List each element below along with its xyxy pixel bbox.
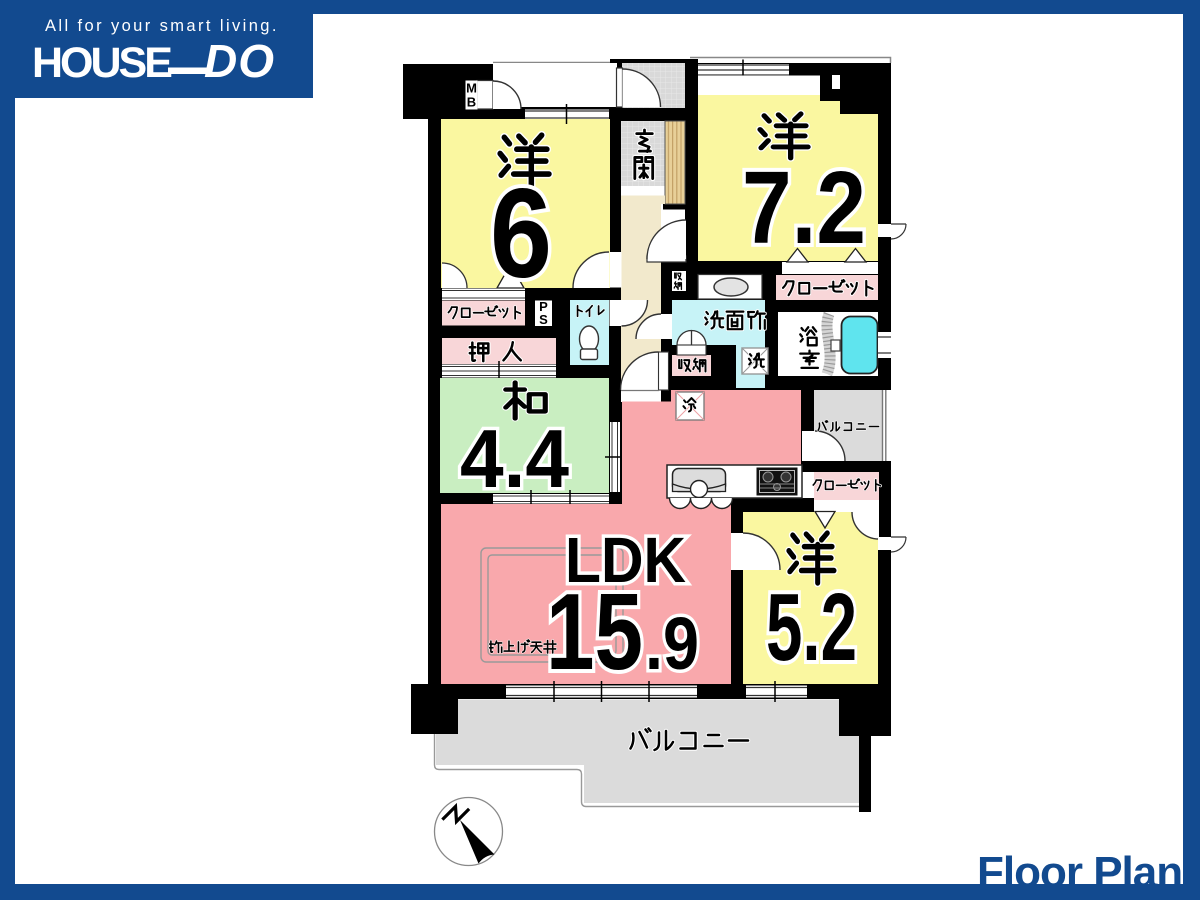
svg-text:15: 15 (546, 571, 643, 693)
svg-text:HOUSE: HOUSE (32, 39, 171, 87)
svg-text:6: 6 (490, 162, 552, 304)
svg-text:Floor Plan: Floor Plan (977, 848, 1182, 897)
svg-text:4.4: 4.4 (460, 412, 569, 505)
svg-text:M: M (466, 81, 477, 96)
svg-text:.9: .9 (645, 602, 699, 685)
svg-text:5.2: 5.2 (766, 574, 857, 681)
svg-text:S: S (539, 312, 548, 327)
svg-text:All for your smart living.: All for your smart living. (45, 17, 279, 35)
svg-text:DO: DO (204, 35, 275, 87)
svg-text:7.2: 7.2 (742, 150, 866, 265)
svg-text:B: B (467, 95, 476, 110)
